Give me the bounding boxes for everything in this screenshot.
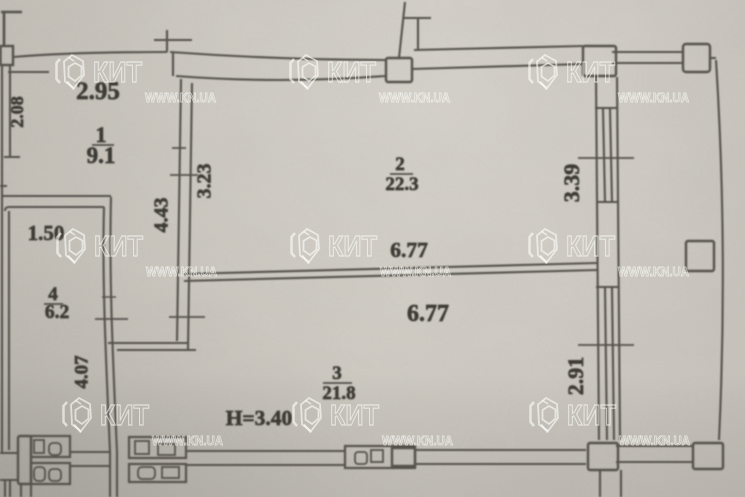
svg-text:9.1: 9.1 (87, 143, 116, 168)
svg-text:3.23: 3.23 (194, 164, 216, 199)
svg-text:2: 2 (395, 154, 405, 175)
svg-text:6.77: 6.77 (390, 238, 428, 262)
svg-text:2.91: 2.91 (563, 357, 588, 396)
svg-text:2.08: 2.08 (7, 96, 27, 128)
svg-text:4.07: 4.07 (71, 355, 92, 389)
svg-text:3.39: 3.39 (559, 164, 584, 203)
svg-text:1.50: 1.50 (28, 221, 65, 245)
svg-text:22.3: 22.3 (385, 174, 418, 195)
svg-text:6.2: 6.2 (45, 302, 69, 323)
svg-text:4.43: 4.43 (151, 198, 173, 233)
svg-text:3: 3 (332, 363, 342, 384)
svg-text:6.77: 6.77 (407, 301, 449, 327)
svg-text:Н=3.40: Н=3.40 (226, 406, 293, 430)
